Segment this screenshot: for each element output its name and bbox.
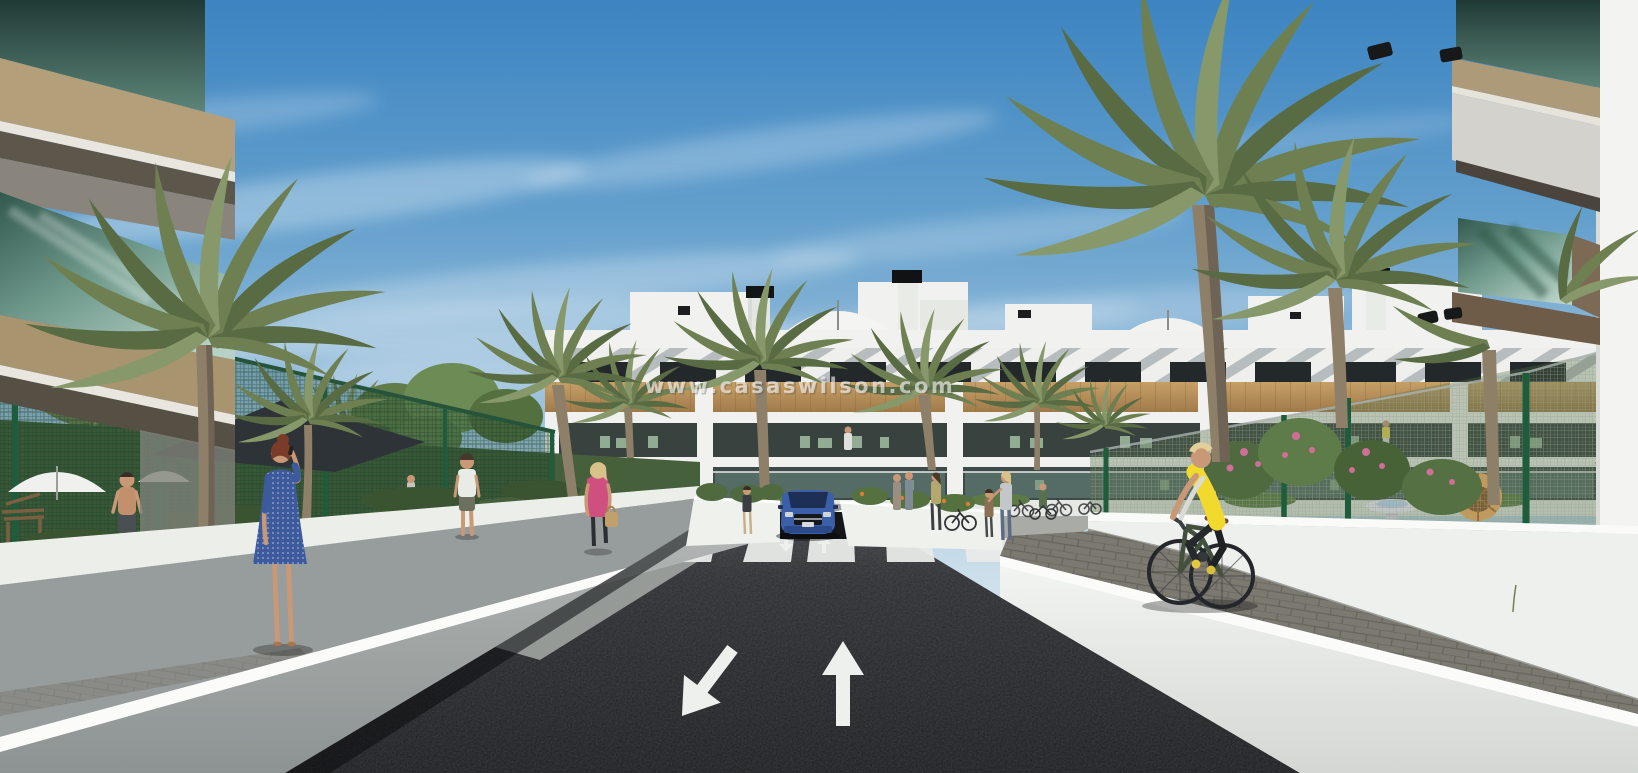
handbag xyxy=(605,512,618,527)
ramp-planter-left xyxy=(686,498,780,546)
watermark: www.casaswilson.com www.casaswilson.com xyxy=(645,374,957,400)
car xyxy=(776,490,840,541)
hair-bun xyxy=(277,434,289,446)
pink-top xyxy=(587,475,609,517)
render-canvas: www.casaswilson.com www.casaswilson.com xyxy=(0,0,1638,773)
watermark-text: www.casaswilson.com xyxy=(645,374,956,398)
